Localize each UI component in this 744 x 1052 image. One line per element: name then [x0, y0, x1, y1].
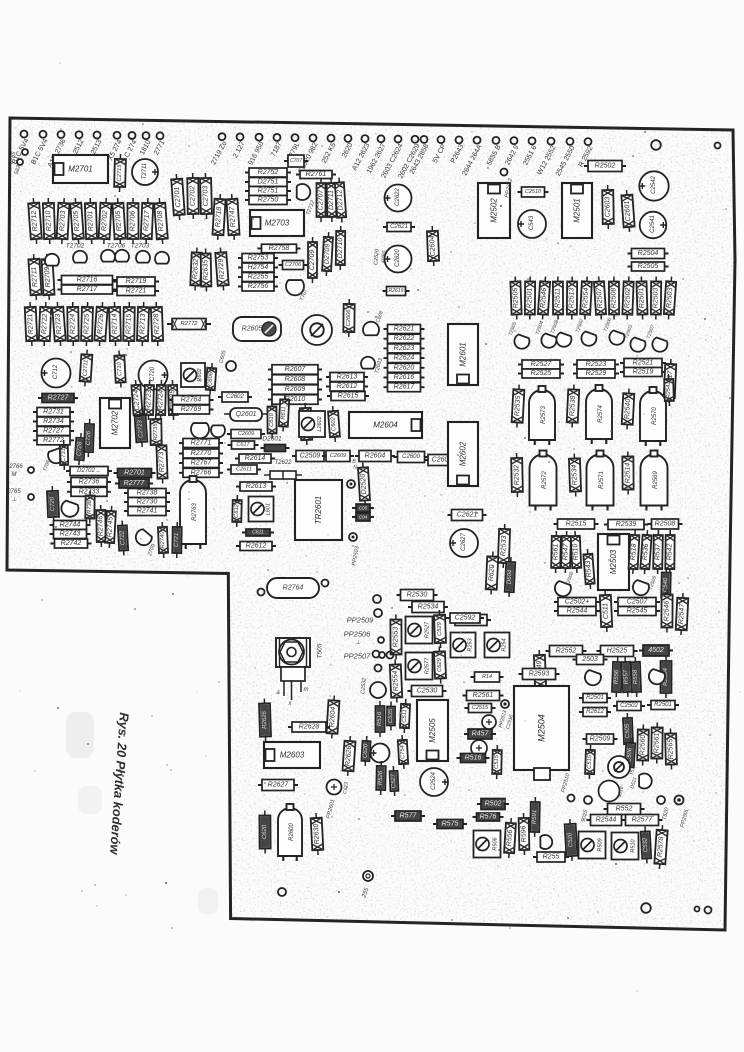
svg-text:R2525: R2525 — [531, 370, 552, 377]
svg-text:C2603: C2603 — [604, 197, 611, 218]
svg-text:R254: R254 — [502, 638, 508, 651]
svg-text:C629: C629 — [437, 657, 444, 672]
svg-text:C511: C511 — [602, 603, 610, 620]
svg-text:M2602: M2602 — [459, 441, 468, 466]
svg-text:C532: C532 — [643, 837, 650, 852]
svg-text:2765: 2765 — [6, 489, 21, 495]
svg-text:R2623: R2623 — [394, 345, 415, 352]
svg-text:R2630: R2630 — [313, 823, 321, 844]
svg-text:M2601: M2601 — [459, 342, 468, 366]
svg-text:C722: C722 — [120, 530, 127, 545]
svg-text:M2603: M2603 — [280, 751, 305, 760]
svg-text:R2747: R2747 — [229, 205, 237, 227]
svg-text:R2715: R2715 — [125, 314, 132, 335]
svg-text:R2746: R2746 — [97, 516, 104, 537]
svg-text:R2743: R2743 — [60, 531, 81, 538]
svg-text:R2545: R2545 — [627, 608, 648, 615]
svg-text:C2542: C2542 — [651, 176, 657, 194]
svg-text:R2539: R2539 — [616, 521, 637, 528]
svg-text:R2756: R2756 — [248, 283, 269, 290]
svg-text:C2510: C2510 — [525, 189, 542, 195]
svg-text:C728: C728 — [76, 441, 83, 456]
svg-text:C505: C505 — [625, 723, 632, 738]
svg-text:R556: R556 — [506, 829, 514, 846]
svg-text:R2719: R2719 — [126, 278, 147, 285]
svg-text:R2569: R2569 — [653, 471, 659, 489]
svg-text:C712: C712 — [53, 364, 59, 379]
svg-text:C721: C721 — [174, 533, 180, 547]
svg-text:R2728: R2728 — [153, 313, 161, 334]
svg-text:R2515: R2515 — [566, 521, 587, 528]
svg-text:R14: R14 — [482, 674, 492, 680]
svg-text:R2527: R2527 — [425, 621, 431, 638]
svg-text:R2502: R2502 — [624, 287, 632, 308]
svg-text:R2571: R2571 — [599, 471, 605, 489]
svg-text:R2701: R2701 — [124, 470, 145, 477]
svg-text:C2600: C2600 — [402, 454, 420, 460]
svg-text:R516: R516 — [465, 755, 482, 762]
svg-text:C2601: C2601 — [624, 200, 632, 221]
svg-text:L601: L601 — [266, 503, 272, 515]
svg-text:R558: R558 — [633, 669, 640, 684]
svg-text:R2508: R2508 — [655, 521, 676, 528]
svg-text:R2593: R2593 — [529, 671, 550, 678]
svg-text:R2710: R2710 — [45, 210, 53, 231]
svg-text:R2604: R2604 — [329, 706, 337, 727]
svg-text:C2507: C2507 — [627, 599, 649, 606]
svg-text:R2501: R2501 — [526, 288, 533, 309]
svg-text:R2705: R2705 — [115, 210, 123, 231]
svg-text:R2577: R2577 — [632, 817, 654, 824]
svg-text:C2709: C2709 — [309, 250, 316, 271]
svg-text:C2703: C2703 — [202, 186, 210, 207]
svg-text:T2711: T2711 — [142, 163, 148, 180]
svg-text:R2616: R2616 — [394, 374, 415, 381]
svg-text:R2533: R2533 — [500, 535, 508, 556]
svg-text:C2524: C2524 — [431, 772, 437, 790]
svg-text:R2724: R2724 — [157, 390, 165, 411]
svg-text:C2621: C2621 — [390, 224, 408, 230]
svg-text:R591: R591 — [532, 810, 538, 824]
svg-text:R577: R577 — [400, 813, 418, 820]
svg-text:R2731: R2731 — [43, 409, 64, 416]
svg-text:R2626: R2626 — [345, 745, 353, 766]
svg-text:R2763: R2763 — [192, 503, 198, 521]
svg-text:R2726: R2726 — [97, 313, 105, 334]
svg-text:R2546: R2546 — [540, 287, 548, 308]
svg-text:R2605: R2605 — [242, 326, 263, 333]
svg-text:R2767: R2767 — [191, 460, 213, 467]
svg-text:D2751: D2751 — [258, 179, 279, 186]
svg-text:R2600: R2600 — [289, 823, 295, 841]
svg-text:R2701: R2701 — [87, 210, 95, 231]
svg-text:R547: R547 — [562, 542, 570, 560]
svg-text:R2554: R2554 — [582, 287, 590, 308]
svg-text:R2714: R2714 — [111, 314, 119, 335]
svg-text:R2772: R2772 — [43, 437, 64, 444]
svg-text:M2702: M2702 — [111, 410, 120, 435]
svg-text:R2624: R2624 — [394, 355, 415, 362]
svg-text:R2718: R2718 — [215, 206, 223, 227]
svg-text:R2734: R2734 — [43, 418, 64, 425]
svg-text:R2560: R2560 — [639, 735, 646, 756]
svg-text:R2501: R2501 — [654, 702, 672, 708]
svg-text:R2626: R2626 — [262, 710, 269, 729]
svg-text:R2503: R2503 — [666, 287, 674, 308]
svg-text:R2612: R2612 — [246, 543, 267, 550]
svg-text:C535: C535 — [388, 708, 394, 723]
svg-text:R2572: R2572 — [542, 471, 548, 489]
svg-text:R506: R506 — [493, 836, 499, 850]
svg-text:R502: R502 — [485, 801, 502, 808]
svg-text:C731: C731 — [61, 448, 67, 462]
svg-text:C620: C620 — [262, 824, 268, 839]
svg-text:R2547: R2547 — [678, 602, 686, 624]
svg-text:R2709: R2709 — [44, 266, 52, 287]
svg-text:C720: C720 — [50, 496, 57, 511]
svg-text:R2741: R2741 — [137, 508, 158, 515]
svg-text:R2608: R2608 — [285, 376, 306, 383]
svg-text:R2721: R2721 — [27, 313, 35, 334]
svg-text:R2632: R2632 — [192, 258, 200, 279]
svg-text:C611: C611 — [252, 530, 264, 536]
svg-text:R2735: R2735 — [153, 423, 159, 441]
svg-text:C726: C726 — [86, 430, 93, 445]
svg-text:⊥: ⊥ — [11, 496, 16, 503]
svg-text:R2750: R2750 — [258, 197, 279, 204]
svg-text:C710: C710 — [117, 361, 124, 376]
svg-text:R2532: R2532 — [513, 465, 520, 486]
svg-text:R518: R518 — [630, 543, 638, 560]
svg-text:R2538: R2538 — [569, 395, 577, 416]
svg-text:R2552: R2552 — [556, 648, 577, 655]
svg-text:C2609: C2609 — [238, 431, 254, 437]
svg-text:C2502: C2502 — [620, 703, 638, 709]
svg-text:R611: R611 — [281, 406, 288, 420]
svg-text:R2622: R2622 — [394, 335, 415, 342]
svg-text:R2604: R2604 — [365, 453, 386, 460]
svg-text:R2727: R2727 — [48, 395, 70, 402]
svg-text:R2503: R2503 — [652, 288, 659, 309]
svg-text:R2764: R2764 — [181, 397, 202, 404]
svg-text:40/60: 40/60 — [380, 250, 387, 263]
svg-text:D2712: D2712 — [336, 189, 344, 210]
svg-text:R2613: R2613 — [246, 483, 267, 490]
svg-text:C2711: C2711 — [82, 359, 89, 376]
svg-text:R2717: R2717 — [143, 209, 151, 231]
svg-text:R2725: R2725 — [83, 313, 91, 334]
svg-text:R2761: R2761 — [306, 171, 327, 178]
svg-text:M2701: M2701 — [68, 165, 92, 174]
svg-text:D2711: D2711 — [328, 190, 335, 210]
svg-text:C617: C617 — [236, 442, 250, 448]
svg-text:R536: R536 — [642, 543, 650, 560]
svg-text:R596: R596 — [520, 825, 527, 842]
svg-text:D2702→: D2702→ — [77, 468, 101, 474]
svg-text:R2723: R2723 — [145, 389, 153, 410]
svg-text:C610: C610 — [269, 412, 275, 427]
svg-text:C511: C511 — [402, 709, 409, 723]
svg-text:M2604: M2604 — [373, 421, 398, 430]
svg-text:R2617: R2617 — [394, 384, 416, 391]
svg-text:C2627: C2627 — [461, 533, 467, 551]
svg-text:R2546: R2546 — [663, 601, 670, 622]
svg-text:R2627: R2627 — [268, 782, 290, 789]
svg-text:R2534: R2534 — [418, 604, 439, 611]
svg-text:R2733: R2733 — [79, 488, 100, 495]
svg-text:R542: R542 — [666, 543, 673, 560]
svg-text:R2771: R2771 — [191, 440, 212, 447]
svg-text:C2502+: C2502+ — [565, 599, 590, 606]
svg-text:C720: C720 — [150, 366, 156, 381]
svg-text:R2614: R2614 — [245, 455, 266, 462]
svg-text:R2717: R2717 — [77, 286, 99, 293]
svg-text:C2515: C2515 — [472, 705, 489, 711]
svg-text:4502: 4502 — [648, 647, 664, 654]
svg-text:C754: C754 — [400, 745, 407, 759]
svg-text:D2710: D2710 — [337, 238, 344, 259]
svg-text:C527: C527 — [391, 773, 398, 788]
svg-text:C2530: C2530 — [417, 688, 438, 695]
svg-text:C602: C602 — [330, 416, 337, 431]
svg-text:R2619: R2619 — [389, 288, 404, 294]
svg-text:R2255: R2255 — [248, 274, 269, 281]
svg-text:R2713: R2713 — [139, 313, 147, 334]
svg-text:R2505: R2505 — [512, 287, 520, 308]
svg-text:M2504: M2504 — [537, 714, 547, 742]
svg-text:R2751: R2751 — [258, 188, 279, 195]
svg-text:D2520: D2520 — [360, 473, 368, 494]
svg-text:R2770: R2770 — [191, 450, 212, 457]
svg-text:T2706: T2706 — [107, 243, 126, 250]
svg-text:TR2601: TR2601 — [314, 496, 323, 524]
svg-text:R557: R557 — [623, 669, 630, 684]
svg-text:R2621: R2621 — [394, 326, 415, 333]
svg-text:C2611: C2611 — [236, 467, 252, 473]
svg-text:M2505: M2505 — [428, 718, 437, 743]
svg-text:R510: R510 — [572, 543, 580, 560]
svg-text:M2501: M2501 — [573, 198, 582, 222]
svg-text:C529: C529 — [437, 621, 443, 636]
svg-text:T505: T505 — [317, 643, 324, 658]
svg-text:R2727: R2727 — [43, 428, 65, 435]
svg-text:R2772: R2772 — [180, 321, 198, 327]
svg-text:R2521: R2521 — [633, 360, 654, 367]
svg-text:R255: R255 — [543, 854, 560, 861]
svg-text:R575: R575 — [442, 821, 459, 828]
svg-text:C707: C707 — [290, 158, 302, 164]
svg-text:R2730: R2730 — [137, 499, 158, 506]
svg-text:R602: R602 — [197, 368, 203, 381]
svg-text:R2777: R2777 — [124, 480, 146, 487]
svg-text:R2612: R2612 — [586, 709, 604, 715]
svg-text:Q2601: Q2601 — [235, 411, 256, 418]
svg-text:C2621: C2621 — [457, 512, 478, 519]
svg-text:C606: C606 — [208, 371, 215, 386]
svg-text:R2620: R2620 — [394, 364, 415, 371]
svg-text:2503: 2503 — [581, 656, 598, 663]
svg-text:PP2507: PP2507 — [344, 652, 372, 661]
svg-text:R561: R561 — [552, 543, 559, 560]
svg-text:R2607: R2607 — [285, 366, 307, 373]
svg-text:R2702: R2702 — [101, 210, 109, 231]
svg-text:R2703: R2703 — [59, 210, 67, 231]
svg-text:R2553: R2553 — [392, 627, 399, 648]
svg-text:R2742: R2742 — [61, 540, 82, 547]
svg-text:R516: R516 — [377, 711, 383, 726]
svg-text:R2724: R2724 — [69, 314, 76, 335]
svg-text:D2709: D2709 — [323, 243, 331, 264]
svg-text:M2502: M2502 — [490, 198, 499, 223]
svg-text:R2511: R2511 — [554, 288, 561, 308]
svg-text:M2503: M2503 — [609, 549, 618, 574]
svg-text:R2527: R2527 — [531, 361, 553, 368]
svg-text:C05: C05 — [359, 506, 368, 511]
svg-text:R2504: R2504 — [638, 250, 659, 257]
svg-text:R2540: R2540 — [624, 398, 632, 419]
svg-text:C515: C515 — [494, 754, 500, 769]
svg-text:C2602: C2602 — [226, 394, 244, 400]
svg-text:R2529: R2529 — [586, 370, 607, 377]
svg-text:R2574: R2574 — [598, 405, 604, 423]
svg-text:C515: C515 — [587, 754, 594, 769]
svg-text:R620: R620 — [488, 564, 496, 581]
svg-text:C2606: C2606 — [346, 309, 352, 327]
svg-text:C2620: C2620 — [395, 249, 401, 267]
svg-text:R576: R576 — [480, 814, 497, 821]
svg-text:R2635: R2635 — [202, 260, 209, 281]
svg-text:R2740: R2740 — [160, 531, 167, 549]
svg-text:R2570: R2570 — [652, 407, 658, 425]
svg-text:M2703: M2703 — [265, 219, 290, 228]
svg-text:T2622: T2622 — [274, 460, 292, 466]
svg-text:R2519: R2519 — [633, 369, 654, 376]
svg-text:R2514: R2514 — [624, 463, 631, 484]
svg-text:R2561: R2561 — [473, 692, 494, 699]
svg-text:C543: C543 — [529, 215, 535, 230]
svg-text:PP2509: PP2509 — [347, 616, 375, 625]
svg-text:H2754: H2754 — [248, 264, 269, 271]
svg-text:R2530: R2530 — [407, 592, 428, 599]
svg-text:C2715: C2715 — [117, 164, 123, 182]
svg-text:R2501: R2501 — [638, 287, 646, 308]
svg-text:R552: R552 — [616, 806, 633, 813]
svg-text:R2758: R2758 — [269, 245, 290, 252]
svg-text:C2622: C2622 — [395, 188, 401, 206]
svg-text:C2702: C2702 — [189, 186, 196, 207]
svg-text:m: m — [304, 687, 309, 693]
svg-text:D604: D604 — [507, 569, 514, 584]
svg-text:R2764: R2764 — [283, 585, 304, 592]
svg-text:C2604: C2604 — [429, 235, 437, 256]
svg-text:T2702: T2702 — [66, 243, 85, 250]
svg-text:R738: R738 — [87, 499, 93, 514]
svg-text:R2609: R2609 — [285, 386, 306, 393]
svg-text:R2706: R2706 — [129, 211, 136, 232]
svg-text:R253: R253 — [468, 637, 474, 651]
svg-text:C2609: C2609 — [330, 453, 346, 459]
svg-text:R2523: R2523 — [586, 361, 607, 368]
svg-text:PP2506: PP2506 — [344, 630, 372, 639]
svg-text:C540: C540 — [663, 577, 669, 592]
svg-text:R2716: R2716 — [77, 277, 98, 284]
svg-text:R537: R537 — [654, 542, 661, 560]
svg-text:R2769: R2769 — [181, 406, 202, 413]
svg-text:C612: C612 — [234, 503, 240, 518]
svg-text:R2613: R2613 — [337, 374, 358, 381]
svg-text:C2592: C2592 — [455, 615, 476, 622]
svg-text:C620: C620 — [363, 743, 370, 758]
svg-text:R526: R526 — [378, 770, 384, 785]
svg-text:C2541: C2541 — [650, 215, 656, 233]
svg-text:R457: R457 — [472, 731, 490, 738]
svg-text:C2509: C2509 — [300, 453, 321, 460]
svg-text:R2501: R2501 — [586, 695, 604, 701]
svg-text:R2513: R2513 — [568, 288, 575, 309]
svg-text:M: M — [12, 472, 17, 478]
svg-text:R556: R556 — [614, 669, 621, 684]
svg-text:R510: R510 — [631, 838, 637, 852]
svg-text:C2723: C2723 — [137, 419, 144, 438]
svg-text:R2628: R2628 — [299, 724, 320, 731]
svg-text:T2703: T2703 — [131, 243, 150, 250]
svg-text:R2509: R2509 — [590, 736, 611, 743]
svg-text:R2573: R2573 — [541, 406, 547, 424]
svg-text:R2612: R2612 — [337, 383, 358, 390]
svg-text:C04: C04 — [359, 515, 368, 520]
svg-text:R2753: R2753 — [248, 255, 269, 262]
svg-text:R2577: R2577 — [425, 657, 431, 674]
svg-text:R2736: R2736 — [79, 479, 100, 486]
svg-text:R2744: R2744 — [60, 522, 81, 529]
svg-text:R2745: R2745 — [106, 516, 114, 537]
svg-text:R2502: R2502 — [595, 163, 616, 170]
svg-text:R2535: R2535 — [514, 395, 522, 416]
svg-text:R2722: R2722 — [41, 313, 49, 334]
svg-text:R2544: R2544 — [596, 817, 617, 824]
svg-text:R2738: R2738 — [137, 490, 158, 497]
svg-text:R2507: R2507 — [596, 286, 604, 308]
svg-text:R2565: R2565 — [667, 738, 675, 759]
svg-text:2766: 2766 — [8, 464, 23, 470]
svg-text:R2541: R2541 — [666, 381, 673, 398]
svg-text:C2706: C2706 — [285, 262, 302, 268]
svg-text:R2554: R2554 — [392, 670, 400, 691]
svg-text:N: N — [353, 465, 357, 471]
svg-text:R2752: R2752 — [258, 169, 279, 176]
svg-text:R2508: R2508 — [610, 288, 617, 309]
svg-text:L2602: L2602 — [317, 416, 323, 431]
svg-text:C2707: C2707 — [317, 189, 324, 211]
svg-text:⊥: ⊥ — [356, 640, 361, 646]
svg-text:R2615: R2615 — [338, 393, 359, 400]
svg-text:R2505: R2505 — [638, 263, 659, 270]
svg-text:H2525: H2525 — [607, 648, 628, 655]
svg-text:R2534: R2534 — [571, 464, 579, 485]
svg-text:R2721: R2721 — [126, 288, 147, 295]
svg-text:R2773: R2773 — [158, 451, 166, 472]
svg-text:R2561: R2561 — [653, 733, 660, 754]
svg-text:C520: C520 — [568, 832, 575, 847]
svg-text:R543: R543 — [585, 560, 593, 577]
svg-text:R2544: R2544 — [567, 608, 588, 615]
svg-text:R509: R509 — [598, 838, 604, 851]
svg-text:R2578: R2578 — [657, 836, 665, 857]
